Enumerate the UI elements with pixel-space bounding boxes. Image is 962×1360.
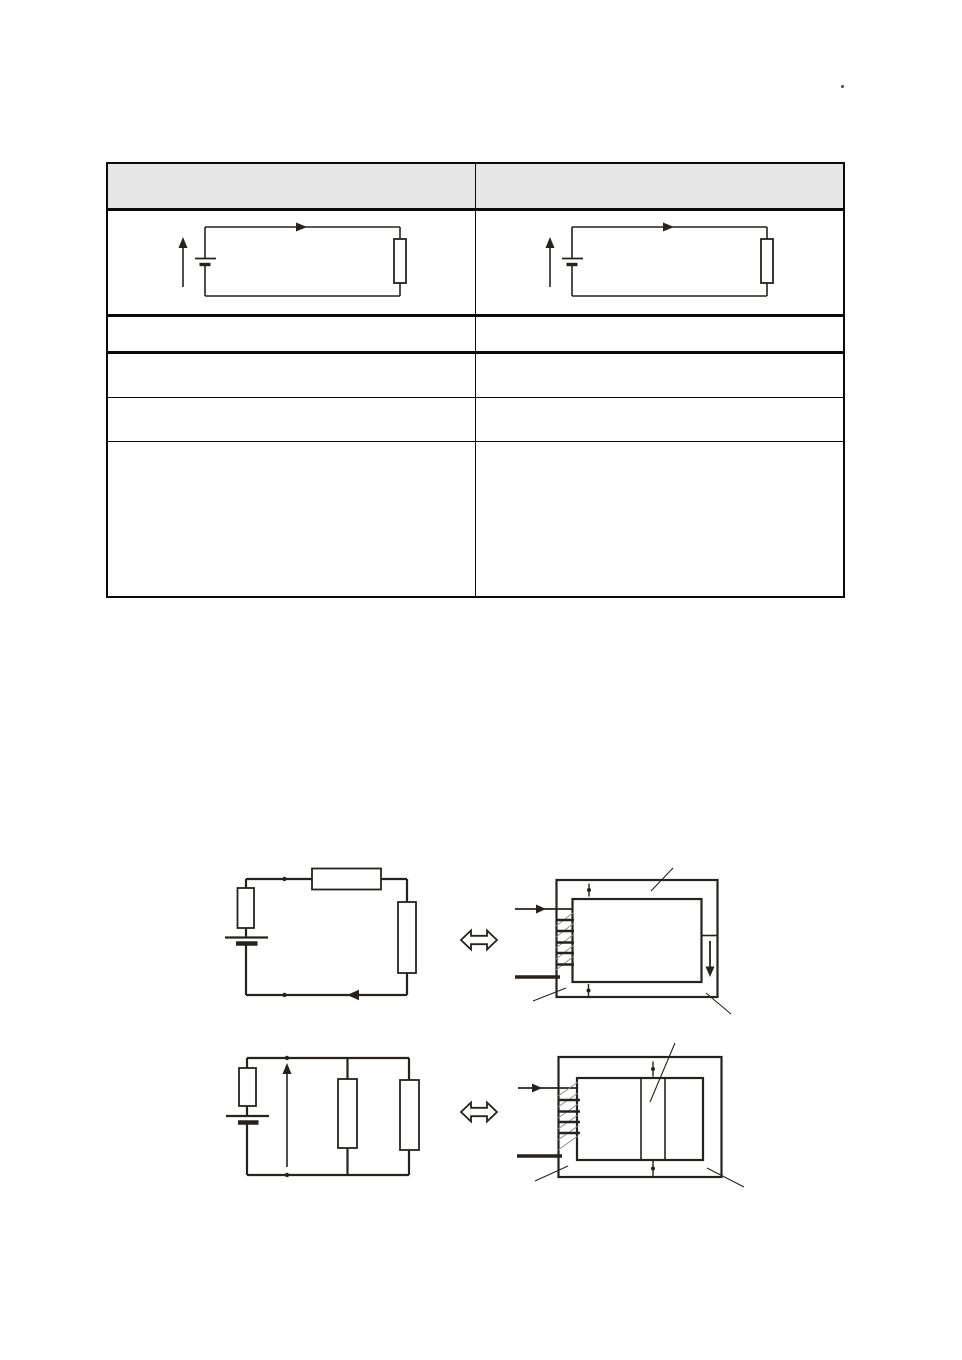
voltage-arrowhead	[283, 1063, 292, 1074]
series-circuit-diagram	[225, 869, 416, 1001]
resistor-symbol	[398, 902, 416, 973]
resistor-symbol	[338, 1079, 357, 1148]
inlet-arrowhead	[532, 1084, 542, 1093]
table-cell-empty	[108, 317, 476, 351]
flow-loop-box-diagram-parallel	[517, 1043, 744, 1187]
middle-channel-walls	[641, 1078, 665, 1160]
pump-hatch-block	[558, 1082, 580, 1150]
flow-down-arrowhead	[706, 967, 715, 978]
resistor-symbol	[238, 888, 255, 928]
table-cell-empty	[108, 398, 476, 441]
parallel-circuit-diagram	[226, 1056, 419, 1177]
current-direction-arrowhead	[347, 990, 359, 1000]
table-empty-row-1	[108, 317, 843, 354]
table-header-cell-right	[476, 164, 843, 208]
callout-leader-line	[650, 1043, 675, 1102]
table-cell-circuit-right	[476, 211, 843, 314]
table-header-row	[108, 164, 843, 211]
callout-leader-line	[533, 988, 566, 1001]
resistor-symbol	[239, 1068, 256, 1106]
stray-period-mark	[841, 85, 844, 88]
inlet-arrowhead	[536, 905, 546, 914]
callout-leader-line	[535, 1166, 568, 1181]
table-cell-empty	[108, 442, 476, 596]
callout-leader-line	[706, 993, 731, 1014]
comparison-table	[106, 162, 845, 598]
callout-leader-line	[707, 1168, 744, 1187]
flow-loop-box-diagram-series	[515, 868, 731, 1014]
table-cell-empty	[476, 317, 843, 351]
table-cell-empty	[476, 442, 843, 596]
pump-hatch-block	[556, 912, 574, 970]
table-empty-row-3	[108, 398, 843, 442]
table-circuit-row	[108, 211, 843, 317]
table-cell-circuit-left	[108, 211, 476, 314]
equivalence-double-arrow-icon	[461, 1103, 497, 1122]
resistor-symbol	[400, 1080, 419, 1150]
table-empty-row-2	[108, 354, 843, 398]
resistor-symbol	[312, 869, 381, 890]
equivalence-double-arrow-icon	[461, 931, 497, 950]
callout-leader-line	[651, 868, 673, 891]
table-empty-row-4	[108, 442, 843, 596]
table-cell-empty	[476, 354, 843, 397]
table-cell-empty	[476, 398, 843, 441]
table-header-cell-left	[108, 164, 476, 208]
document-page	[0, 0, 962, 1360]
table-cell-empty	[108, 354, 476, 397]
